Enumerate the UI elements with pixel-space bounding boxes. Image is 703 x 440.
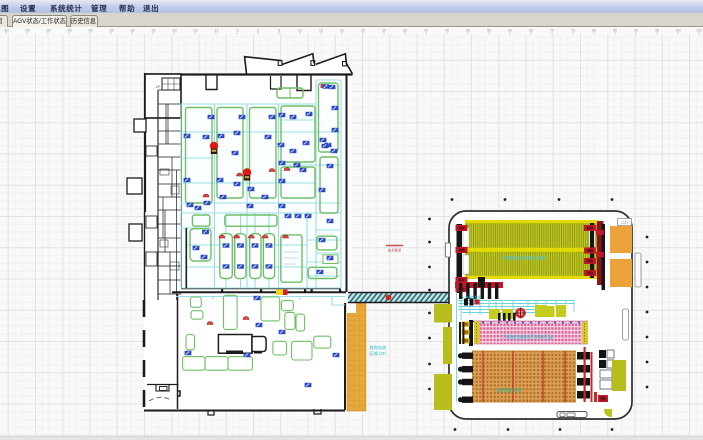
svg-text:105: 105 xyxy=(696,29,702,33)
svg-text:临时存放: 临时存放 xyxy=(370,344,388,351)
svg-text:-30: -30 xyxy=(129,29,134,33)
svg-text:-55: -55 xyxy=(24,29,29,33)
svg-text:0: 0 xyxy=(257,29,259,33)
svg-text:15: 15 xyxy=(319,29,323,33)
svg-text:-10: -10 xyxy=(213,29,218,33)
svg-text:75: 75 xyxy=(571,29,575,33)
svg-text:100: 100 xyxy=(675,29,681,33)
svg-text:65: 65 xyxy=(529,29,533,33)
svg-text:70: 70 xyxy=(550,29,554,33)
svg-text:-40: -40 xyxy=(87,29,92,33)
svg-text:二楼拣选缓存区货架区域: 二楼拣选缓存区货架区域 xyxy=(501,334,553,341)
svg-text:技术要求: 技术要求 xyxy=(388,248,402,253)
svg-text:2F: 2F xyxy=(156,84,161,89)
svg-text:口口: 口口 xyxy=(621,221,627,225)
svg-text:-25: -25 xyxy=(150,29,155,33)
svg-text:35: 35 xyxy=(403,29,407,33)
svg-text:-50: -50 xyxy=(45,29,50,33)
svg-text:80: 80 xyxy=(592,29,596,33)
svg-text:区域 (2F): 区域 (2F) xyxy=(369,350,387,356)
svg-text:10: 10 xyxy=(298,29,302,33)
svg-text:二楼存储区货架: 二楼存储区货架 xyxy=(494,387,522,394)
svg-text:20: 20 xyxy=(340,29,344,33)
svg-text:-5: -5 xyxy=(235,29,238,33)
svg-text:45: 45 xyxy=(445,29,449,33)
svg-text:-35: -35 xyxy=(108,29,113,33)
svg-text:-45: -45 xyxy=(66,29,71,33)
svg-text:-60: -60 xyxy=(3,29,8,33)
svg-text:5: 5 xyxy=(278,29,280,33)
svg-text:40: 40 xyxy=(424,29,428,33)
svg-text:一楼自动化立体库入出库口: 一楼自动化立体库入出库口 xyxy=(501,255,547,262)
svg-text:85: 85 xyxy=(613,29,617,33)
svg-text:30: 30 xyxy=(382,29,386,33)
svg-text:90: 90 xyxy=(634,29,638,33)
svg-text:95: 95 xyxy=(655,29,659,33)
svg-text:25: 25 xyxy=(361,29,365,33)
svg-text:50: 50 xyxy=(466,29,470,33)
svg-text:60: 60 xyxy=(508,29,512,33)
svg-text:-15: -15 xyxy=(192,29,197,33)
svg-text:-20: -20 xyxy=(171,29,176,33)
svg-text:55: 55 xyxy=(487,29,491,33)
